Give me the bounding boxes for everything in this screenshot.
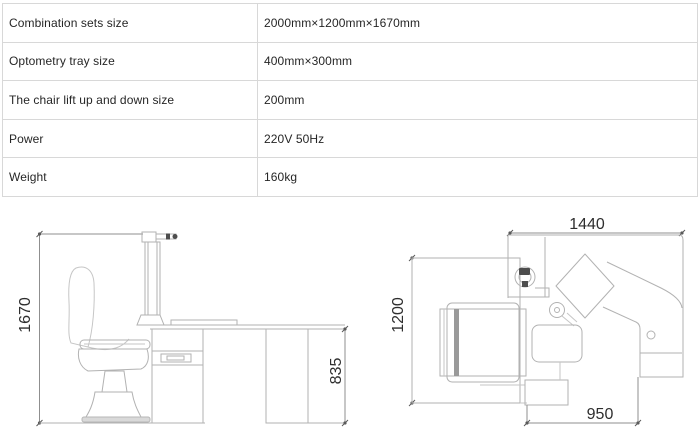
dim-label-1440: 1440 (569, 216, 605, 233)
dim-desk-width: 950 (524, 377, 641, 426)
dim-desk-height: 835 (328, 326, 348, 426)
table-row: The chair lift up and down size 200mm (3, 81, 697, 120)
spec-table: Combination sets size 2000mm×1200mm×1670… (2, 3, 698, 197)
spec-value: 2000mm×1200mm×1670mm (258, 4, 697, 42)
dim-overall-depth: 1200 (390, 255, 415, 406)
lift-pole-icon (137, 232, 178, 325)
table-row: Combination sets size 2000mm×1200mm×1670… (3, 4, 697, 43)
table-row: Power 220V 50Hz (3, 120, 697, 159)
spec-value: 200mm (258, 81, 697, 119)
spec-value: 400mm×300mm (258, 43, 697, 81)
spec-label: Weight (3, 158, 258, 196)
spec-label: Optometry tray size (3, 43, 258, 81)
spec-label: The chair lift up and down size (3, 81, 258, 119)
dim-label-1200: 1200 (390, 297, 407, 333)
dim-label-835: 835 (328, 358, 345, 385)
phoropter-arm-icon (515, 254, 614, 380)
dim-overall-height: 1670 (17, 231, 143, 426)
dim-overall-width: 1440 (507, 216, 685, 236)
side-view-drawing: 1670 (8, 208, 356, 446)
spec-value: 220V 50Hz (258, 120, 697, 158)
table-row: Weight 160kg (3, 158, 697, 197)
table-row: Optometry tray size 400mm×300mm (3, 43, 697, 82)
dim-label-1670: 1670 (17, 297, 34, 333)
chair-side-icon (69, 267, 150, 422)
spec-value: 160kg (258, 158, 697, 196)
spec-label: Combination sets size (3, 4, 258, 42)
top-view-drawing: 1440 1200 (378, 206, 696, 444)
desk-side-icon (148, 320, 345, 423)
spec-label: Power (3, 120, 258, 158)
dim-label-950: 950 (587, 406, 614, 423)
